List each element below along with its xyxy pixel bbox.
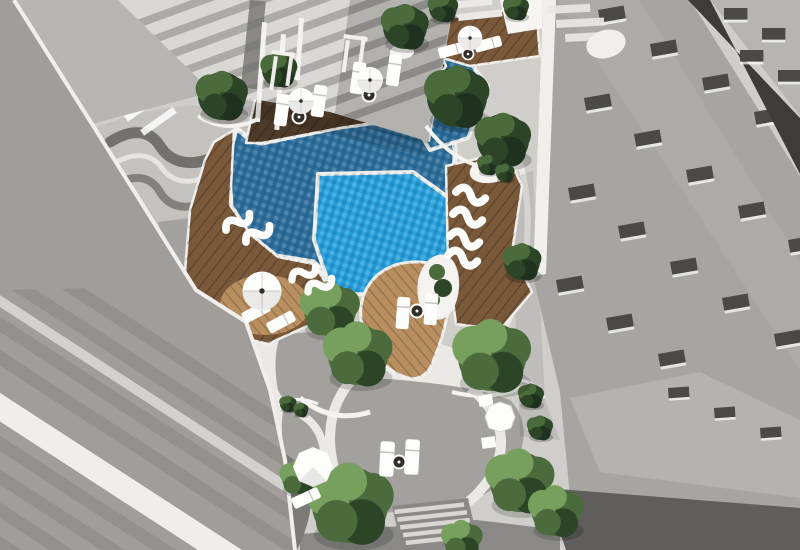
table-plaza: [393, 456, 406, 469]
tree-bright-3: [452, 319, 531, 398]
umbrella-upper-right: [458, 26, 483, 51]
octagon-umbrella: [293, 447, 333, 487]
umbrella-top-1: [288, 88, 314, 114]
table-teardrop: [411, 305, 424, 318]
lounger-teardrop-1: [395, 297, 410, 330]
umbrella-left: [243, 272, 282, 311]
octagon-table: [485, 402, 515, 432]
octagon-seat-2: [481, 436, 496, 449]
lounger-plaza-2: [404, 439, 420, 475]
umbrella-top-2: [357, 67, 383, 93]
lounger-teardrop-2: [423, 293, 438, 326]
tree-bright-7: [528, 485, 584, 541]
tree-bright-2: [323, 321, 393, 391]
tree-dark-7: [503, 0, 529, 22]
courtyard-render: [0, 0, 800, 550]
render-canvas: [0, 0, 800, 550]
tree-dark-6: [428, 0, 459, 25]
